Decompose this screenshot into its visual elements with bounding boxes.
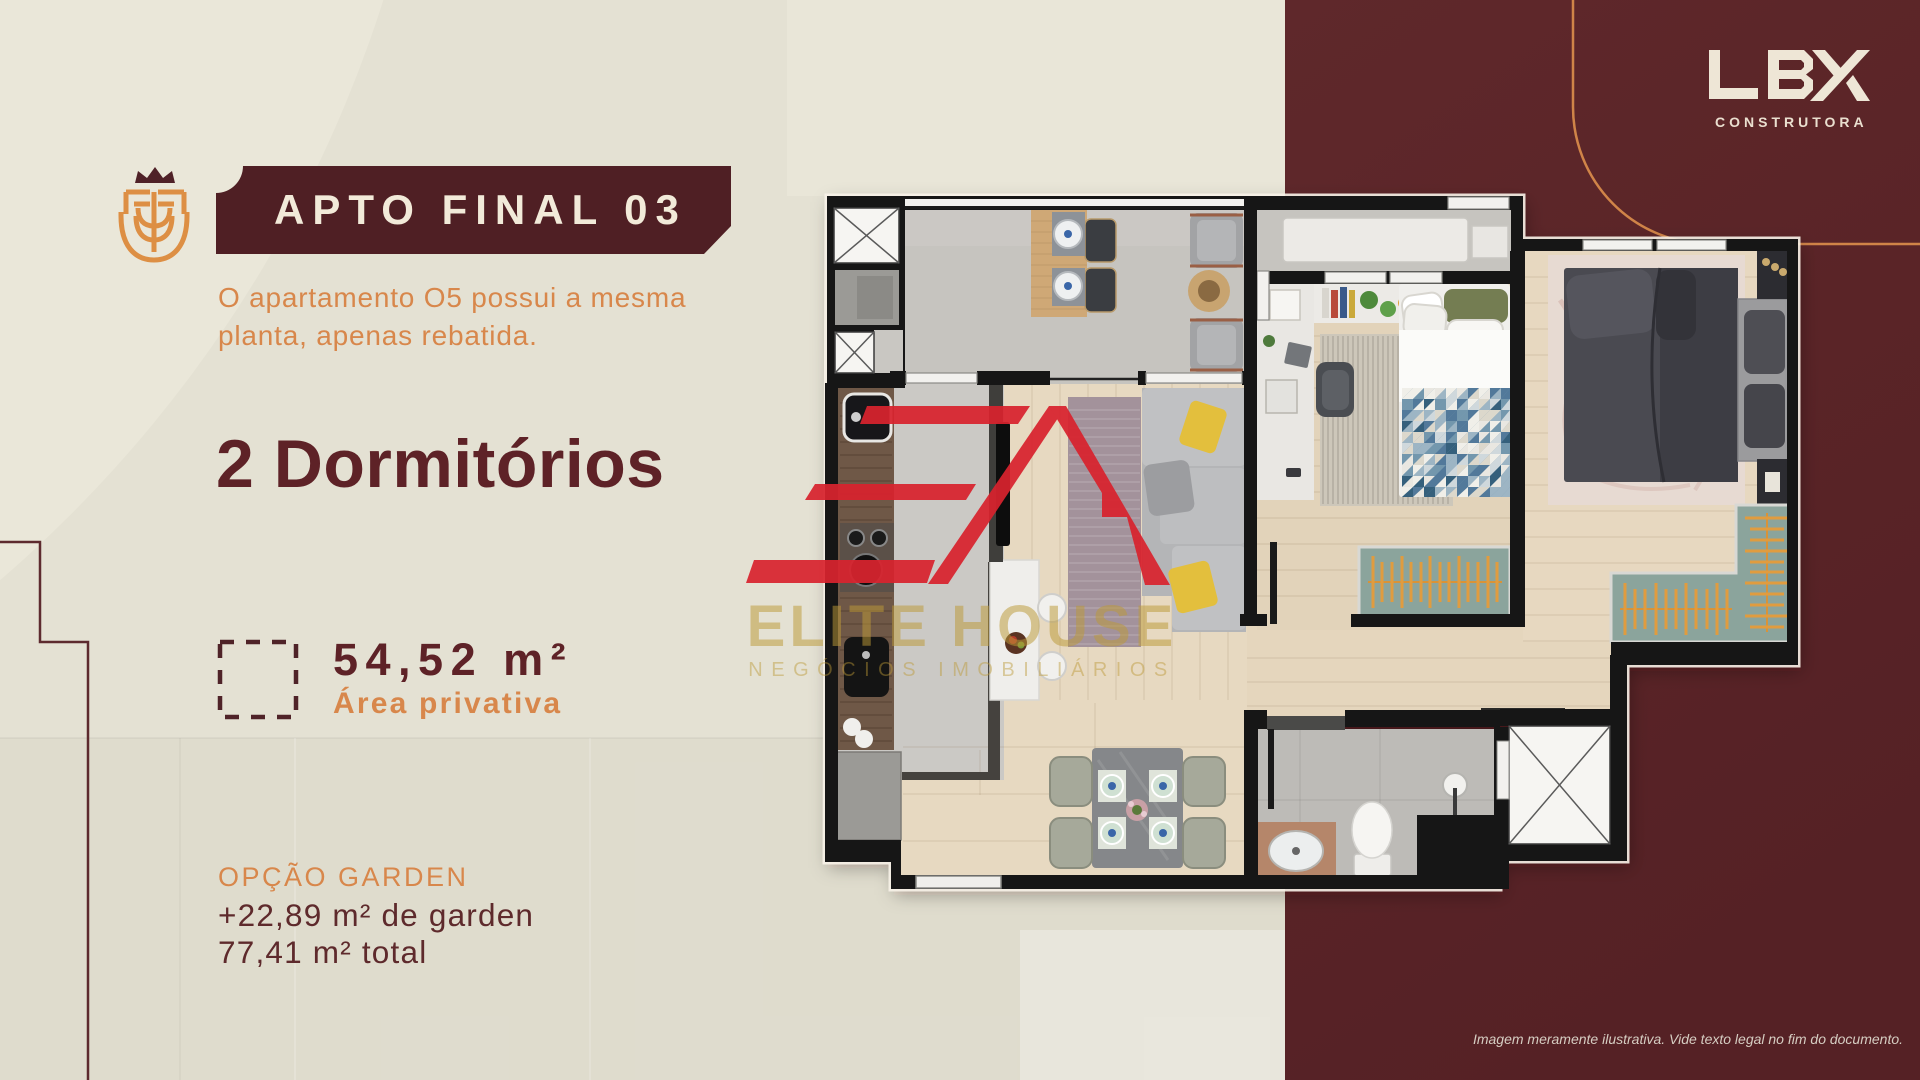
svg-text:CONSTRUTORA: CONSTRUTORA — [1715, 114, 1868, 130]
svg-text:planta, apenas rebatida.: planta, apenas rebatida. — [218, 320, 538, 351]
svg-text:+22,89 m² de garden: +22,89 m² de garden — [218, 897, 534, 933]
svg-text:ELITE HOUSE: ELITE HOUSE — [747, 594, 1178, 659]
svg-text:O apartamento O5 possui a mesm: O apartamento O5 possui a mesma — [218, 282, 686, 313]
svg-text:77,41 m² total: 77,41 m² total — [218, 934, 427, 970]
svg-text:APTO FINAL 03: APTO FINAL 03 — [274, 186, 687, 233]
svg-text:OPÇÃO GARDEN: OPÇÃO GARDEN — [218, 861, 469, 892]
svg-text:54,52 m²: 54,52 m² — [333, 634, 573, 685]
svg-text:Área privativa: Área privativa — [333, 686, 562, 720]
svg-text:NEGÓCIOS IMOBILIÁRIOS: NEGÓCIOS IMOBILIÁRIOS — [748, 658, 1175, 681]
svg-text:Imagem meramente ilustrativa.: Imagem meramente ilustrativa. Vide texto… — [1473, 1031, 1903, 1047]
svg-text:2 Dormitórios: 2 Dormitórios — [216, 426, 665, 502]
